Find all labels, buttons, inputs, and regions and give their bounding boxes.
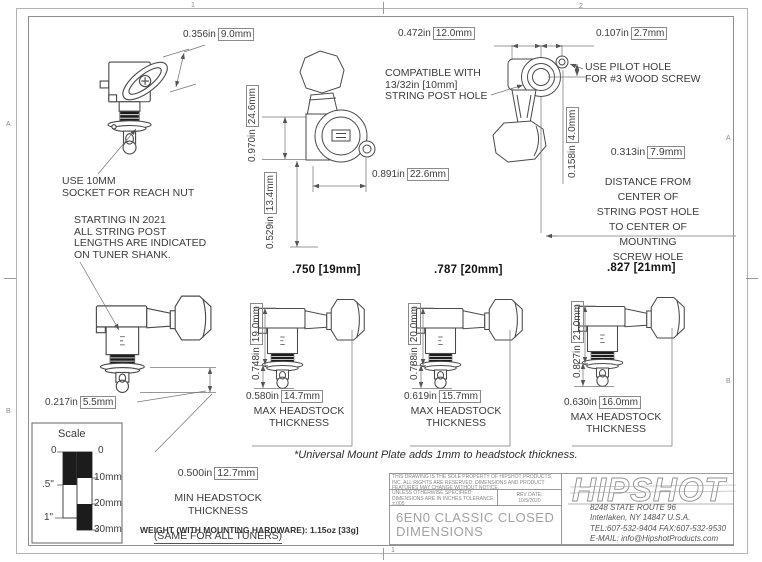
zone-label-left-b: B <box>6 408 11 416</box>
zone-tick-top <box>383 2 384 14</box>
zone-label-top-2: 2 <box>579 3 583 11</box>
dim-body-height: 0.529in13.4mm <box>264 172 277 249</box>
dim-button-width: 0.356in9.0mm <box>183 28 254 41</box>
scale-inch-1: 1" <box>44 512 53 523</box>
address-line: Interlaken, NY 14847 U.S.A. <box>590 513 726 523</box>
part-title: 6EN0 CLASSIC CLOSED DIMENSIONS <box>390 506 561 538</box>
zone-tick-left <box>4 278 16 279</box>
scale-mm-20: 20mm <box>94 498 122 509</box>
title-block: THIS DRAWING IS THE SOLE PROPERTY OF HIP… <box>389 473 734 545</box>
scale-inch-05: .5" <box>42 479 54 490</box>
scale-mm-0: 0 <box>98 445 104 456</box>
rev-date-value: 10/5/2020 <box>498 498 561 504</box>
scale-title: Scale <box>58 428 86 440</box>
variant-787-max-headstock: 0.619in15.7mm <box>404 390 481 403</box>
note-universal-mount: *Universal Mount Plate adds 1mm to heads… <box>294 449 578 461</box>
note-pilot-hole: USE PILOT HOLE FOR #3 WOOD SCREW <box>585 62 701 85</box>
scale-mm-30: 30mm <box>94 524 122 535</box>
zone-tick-right <box>746 278 758 279</box>
zone-label-left-a: A <box>6 121 11 129</box>
zone-label-bottom-1: 1 <box>391 547 395 555</box>
variant-750-max-headstock: 0.580in14.7mm <box>246 390 323 403</box>
zone-label-right-b: B <box>726 378 731 386</box>
note-post-lengths-2021: STARTING IN 2021 ALL STRING POST LENGTHS… <box>74 215 206 261</box>
variant-750-title: .750 [19mm] <box>292 264 361 276</box>
dim-overall-height: 0.970in24.6mm <box>246 85 259 162</box>
dim-overall-width: 0.891in22.6mm <box>372 168 449 181</box>
note-weight: WEIGHT (WITH MOUNTING HARDWARE): 1.15oz … <box>140 525 359 535</box>
zone-label-right-a: A <box>726 135 731 143</box>
dim-pilot-offset-h: 0.107in2.7mm <box>596 27 667 40</box>
variant-827-caption: MAX HEADSTOCK THICKNESS <box>560 411 672 435</box>
zone-label-top-1: 1 <box>191 2 195 10</box>
sheet-border-inner <box>28 16 734 546</box>
scale-mm-10: 10mm <box>94 472 122 483</box>
variant-827-title: .827 [21mm] <box>607 262 676 274</box>
spec-note: UNLESS OTHERWISE SPECIFIED: DIMENSIONS A… <box>390 490 497 506</box>
variant-827-max-headstock: 0.630in16.0mm <box>564 396 641 409</box>
address-line: E-MAIL: info@HipshotProducts.com <box>590 534 726 544</box>
drawing-sheet: HIPSHOT 1 2 1 A B A B 0.356in9.0mm USE 1… <box>0 0 762 562</box>
note-min-headstock: 0.500in12.7mm MIN HEADSTOCK THICKNESS (S… <box>148 454 288 557</box>
dim-post-tip: 0.217in5.5mm <box>45 396 116 409</box>
title-block-spec-cell: UNLESS OTHERWISE SPECIFIED: DIMENSIONS A… <box>390 490 498 506</box>
scale-inch-0: 0 <box>51 445 57 456</box>
rev-date-label: REV DATE: <box>498 490 561 498</box>
address-line: TEL:607-532-9404 FAX:607-532-9530 <box>590 524 726 534</box>
zone-tick-bottom <box>383 548 384 560</box>
variant-827-post-len: 0.827in21.0mm <box>571 301 584 378</box>
title-block-title-cell: 6EN0 CLASSIC CLOSED DIMENSIONS <box>390 506 562 544</box>
note-reach-nut: USE 10MM SOCKET FOR REACH NUT <box>62 176 194 199</box>
title-block-property-cell: THIS DRAWING IS THE SOLE PROPERTY OF HIP… <box>390 474 562 490</box>
variant-750-caption: MAX HEADSTOCK THICKNESS <box>243 405 355 429</box>
property-note: THIS DRAWING IS THE SOLE PROPERTY OF HIP… <box>390 474 561 490</box>
variant-787-title: .787 [20mm] <box>434 264 503 276</box>
company-address: 8248 STATE ROUTE 96 Interlaken, NY 14847… <box>590 503 726 545</box>
address-line: 8248 STATE ROUTE 96 <box>590 503 726 513</box>
note-post-to-screw: 0.313in7.9mm DISTANCE FROM CENTER OF STR… <box>573 130 723 280</box>
title-block-rev-cell: REV DATE: 10/5/2020 <box>498 490 562 506</box>
variant-750-post-len: 0.748in19.0mm <box>250 303 263 380</box>
variant-787-post-len: 0.788in20.0mm <box>408 303 421 380</box>
dim-housing-width: 0.472in12.0mm <box>398 27 475 40</box>
note-string-post-hole: COMPATIBLE WITH 13/32in [10mm] STRING PO… <box>385 68 488 103</box>
variant-787-caption: MAX HEADSTOCK THICKNESS <box>400 405 512 429</box>
